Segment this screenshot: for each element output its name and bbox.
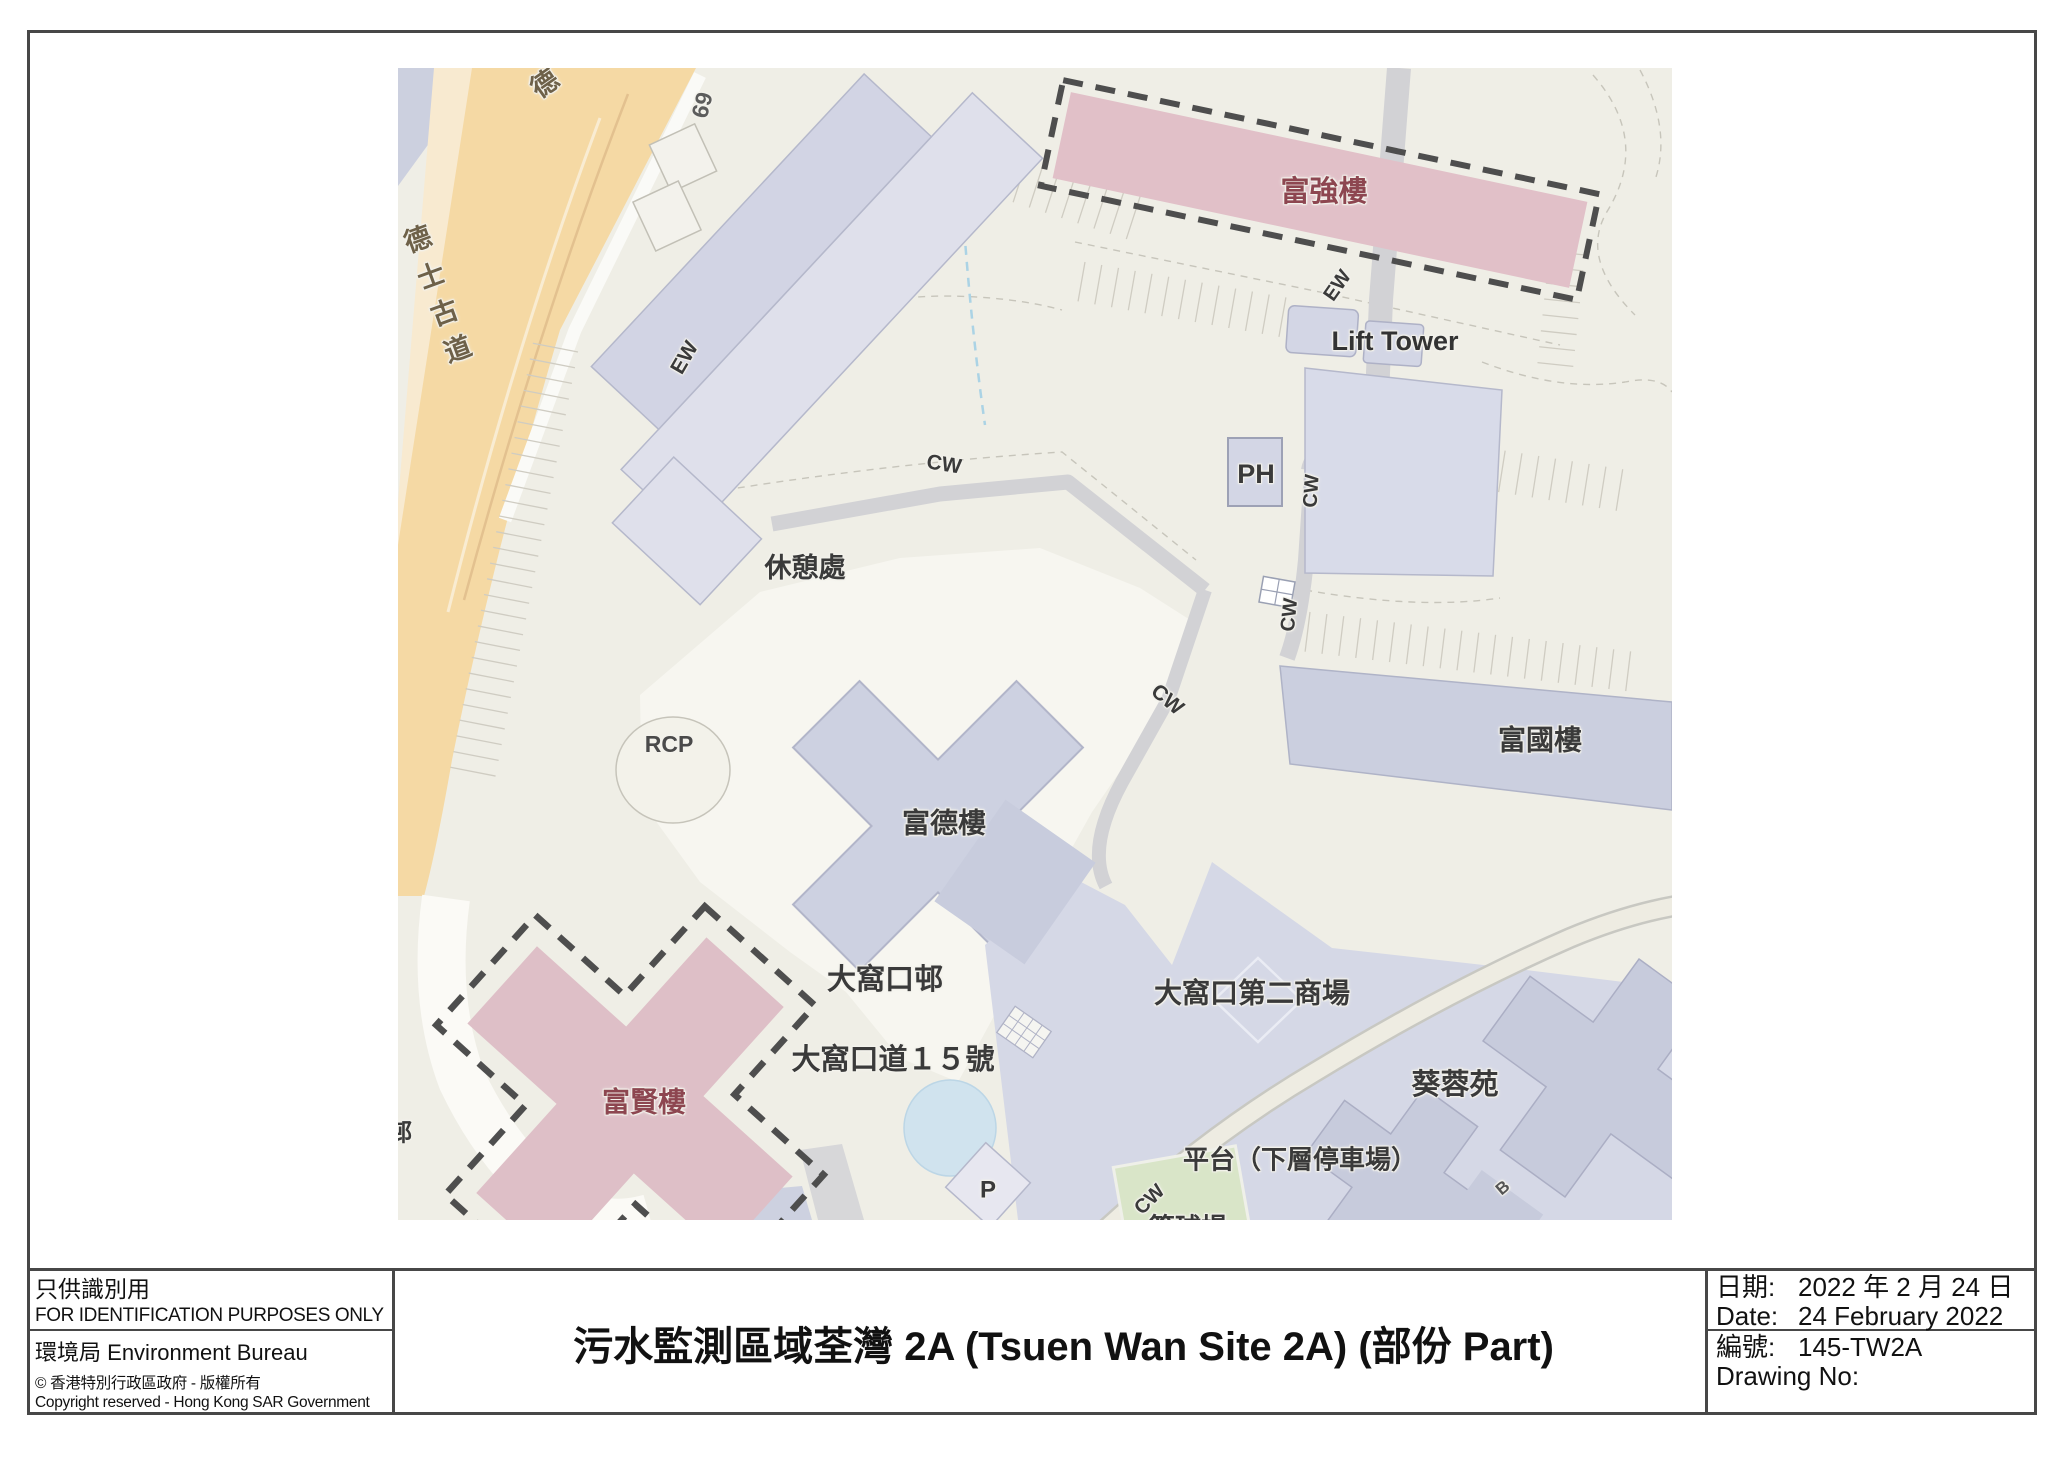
- copyright-zh: © 香港特別行政區政府 - 版權所有: [35, 1374, 384, 1393]
- title-block: 只供識別用 FOR IDENTIFICATION PURPOSES ONLY 環…: [27, 1268, 2037, 1415]
- drawing-no-label-en: Drawing No:: [1716, 1362, 1859, 1391]
- drawing-no-block: 編號: 145-TW2A Drawing No:: [1708, 1331, 2037, 1391]
- drawing-no-label-zh: 編號:: [1716, 1333, 1798, 1362]
- drawing-title: 污水監測區域荃灣 2A (Tsuen Wan Site 2A) (部份 Part…: [573, 1314, 1554, 1372]
- drawing-no-value: 145-TW2A: [1798, 1333, 1922, 1362]
- identification-note: 只供識別用 FOR IDENTIFICATION PURPOSES ONLY: [27, 1271, 392, 1331]
- bureau-name-zh: 環境局: [35, 1340, 101, 1365]
- date-value-en: 24 February 2022: [1798, 1302, 2003, 1331]
- date-label-zh: 日期:: [1716, 1273, 1798, 1302]
- drawing-page: 德士古道德69EWEWLift TowerPHCWCWCWCW休憩處RCP富德樓…: [0, 0, 2064, 1459]
- date-block: 日期: 2022 年 2 月 24 日 Date: 24 February 20…: [1708, 1271, 2037, 1331]
- date-value-zh: 2022 年 2 月 24 日: [1798, 1273, 2013, 1302]
- footer-right-cell: 日期: 2022 年 2 月 24 日 Date: 24 February 20…: [1705, 1271, 2037, 1415]
- date-label-en: Date:: [1716, 1302, 1798, 1331]
- id-note-en: FOR IDENTIFICATION PURPOSES ONLY: [35, 1303, 384, 1329]
- copyright-en: Copyright reserved - Hong Kong SAR Gover…: [35, 1393, 384, 1412]
- footer-left-cell: 只供識別用 FOR IDENTIFICATION PURPOSES ONLY 環…: [27, 1271, 395, 1415]
- copyright: © 香港特別行政區政府 - 版權所有 Copyright reserved - …: [35, 1374, 384, 1412]
- bureau-copyright: 環境局 Environment Bureau © 香港特別行政區政府 - 版權所…: [27, 1331, 392, 1415]
- id-note-zh: 只供識別用: [35, 1276, 384, 1303]
- bureau-name-en: Environment Bureau: [107, 1340, 308, 1365]
- bureau-name: 環境局 Environment Bureau: [35, 1335, 384, 1367]
- footer-title-cell: 污水監測區域荃灣 2A (Tsuen Wan Site 2A) (部份 Part…: [398, 1271, 1729, 1415]
- sheet-border: [27, 30, 2037, 1415]
